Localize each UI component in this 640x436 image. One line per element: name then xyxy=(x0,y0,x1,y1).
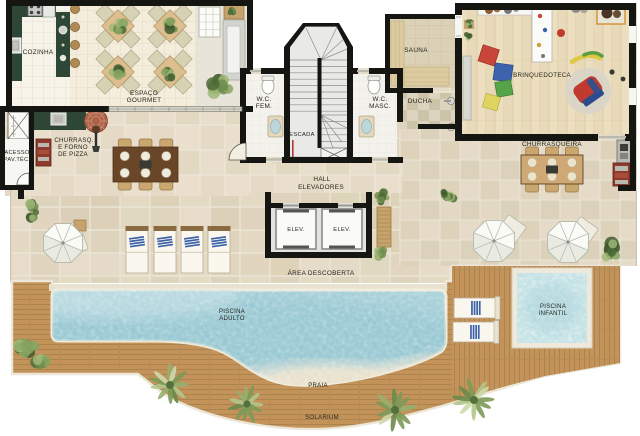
svg-text:SOLARIUM: SOLARIUM xyxy=(305,415,339,421)
svg-text:ESCADA: ESCADA xyxy=(289,132,315,138)
svg-text:DE PIZZA: DE PIZZA xyxy=(58,151,88,158)
svg-text:ADULTO: ADULTO xyxy=(219,316,245,322)
svg-text:PAV.TÉC.: PAV.TÉC. xyxy=(4,156,31,163)
svg-text:E FORNO: E FORNO xyxy=(58,144,88,151)
svg-text:FEM.: FEM. xyxy=(256,103,272,110)
svg-text:PISCINA: PISCINA xyxy=(540,304,566,310)
svg-text:CHURRASQ.: CHURRASQ. xyxy=(54,137,93,144)
svg-text:SAUNA: SAUNA xyxy=(404,47,428,54)
svg-text:MASC.: MASC. xyxy=(369,103,391,110)
svg-text:ACESSO: ACESSO xyxy=(4,150,29,156)
svg-text:ÁREA DESCOBERTA: ÁREA DESCOBERTA xyxy=(288,268,355,277)
svg-text:ESPAÇO: ESPAÇO xyxy=(130,90,158,97)
svg-text:W.C.: W.C. xyxy=(372,96,387,103)
svg-text:INFANTIL: INFANTIL xyxy=(539,311,568,317)
svg-text:ELEVADORES: ELEVADORES xyxy=(298,184,344,191)
svg-text:ELEV.: ELEV. xyxy=(287,227,304,233)
svg-text:GOURMET: GOURMET xyxy=(127,97,162,104)
svg-text:CHURRASQUEIRA: CHURRASQUEIRA xyxy=(522,141,582,148)
svg-text:W.C.: W.C. xyxy=(256,96,271,103)
svg-text:COZINHA: COZINHA xyxy=(23,49,54,56)
svg-text:HALL: HALL xyxy=(313,176,330,183)
svg-text:BRINQUEDOTECA: BRINQUEDOTECA xyxy=(513,72,571,79)
svg-text:PRAIA: PRAIA xyxy=(308,383,328,389)
svg-text:ELEV.: ELEV. xyxy=(333,227,350,233)
svg-text:PISCINA: PISCINA xyxy=(219,309,245,315)
svg-text:DUCHA: DUCHA xyxy=(408,98,433,105)
